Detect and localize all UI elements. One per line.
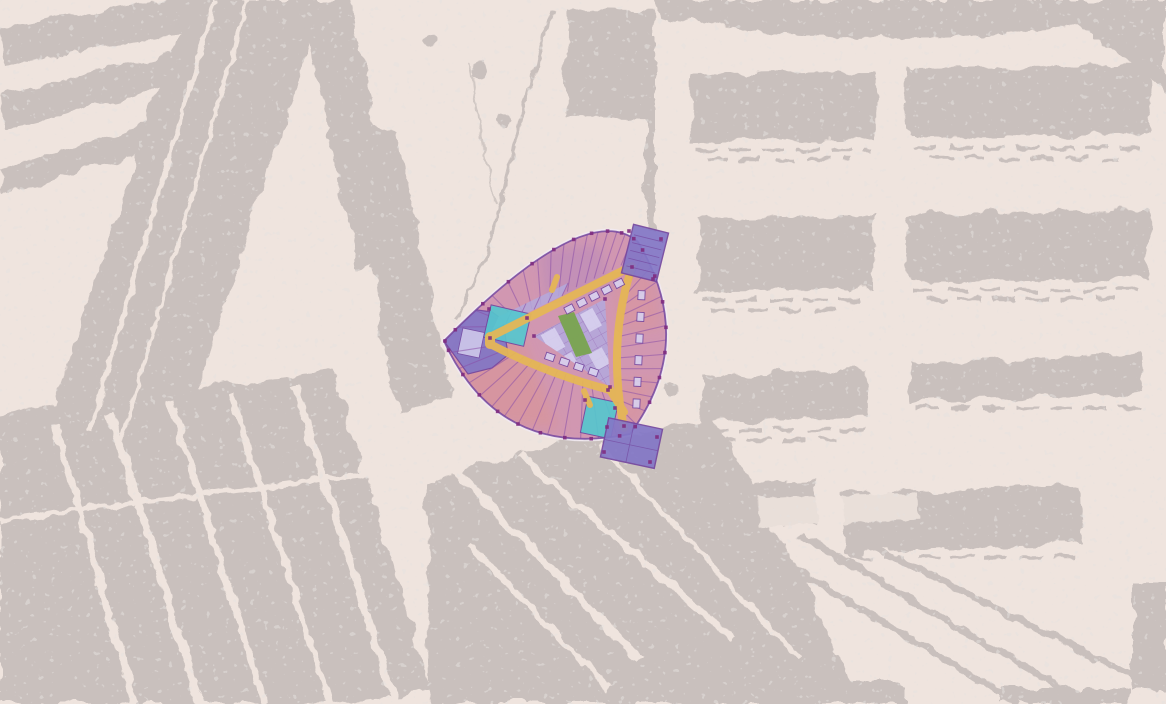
column-dot (618, 434, 622, 438)
column-dot (630, 265, 634, 269)
column-dot (658, 376, 662, 380)
column-dot (648, 400, 652, 404)
column-dot (496, 410, 500, 414)
column-dot (664, 326, 668, 330)
column-dot (572, 238, 576, 242)
service-pod (636, 334, 643, 343)
column-dot (659, 237, 663, 241)
column-dot (447, 349, 451, 353)
column-dot (605, 425, 609, 429)
column-dot (453, 328, 457, 332)
column-dot (477, 393, 481, 397)
column-dot (590, 231, 594, 235)
column-dot (655, 435, 659, 439)
column-dot (620, 231, 624, 235)
column-dot (613, 406, 617, 410)
column-dot (516, 422, 520, 426)
column-dot (552, 248, 556, 252)
service-pod (634, 377, 641, 386)
column-dot (563, 436, 567, 440)
column-dot (488, 336, 492, 340)
column-dot (603, 297, 607, 301)
column-dot (530, 262, 534, 266)
column-dot (651, 277, 655, 281)
column-dot (487, 307, 491, 311)
column-dot (583, 398, 587, 402)
column-dot (461, 373, 465, 377)
column-dot (641, 248, 645, 252)
column-dot (602, 450, 606, 454)
column-dot (589, 437, 593, 441)
site-plan-map-canvas[interactable] (0, 0, 1166, 704)
column-dot (481, 302, 485, 306)
column-dot (627, 229, 631, 233)
column-dot (661, 300, 665, 304)
service-pod (635, 356, 642, 365)
column-dot (622, 424, 626, 428)
service-pod (637, 312, 644, 321)
column-dot (606, 229, 610, 233)
column-dot (632, 237, 636, 241)
column-dot (539, 431, 543, 435)
column-dot (606, 388, 610, 392)
service-pod (633, 399, 640, 408)
site-plan-svg (0, 0, 1166, 704)
service-pod (638, 291, 645, 300)
column-dot (648, 460, 652, 464)
column-dot (532, 334, 536, 338)
column-dot (633, 425, 637, 429)
column-dot (443, 339, 447, 343)
column-dot (507, 280, 511, 284)
column-dot (663, 351, 667, 355)
column-dot (525, 316, 529, 320)
